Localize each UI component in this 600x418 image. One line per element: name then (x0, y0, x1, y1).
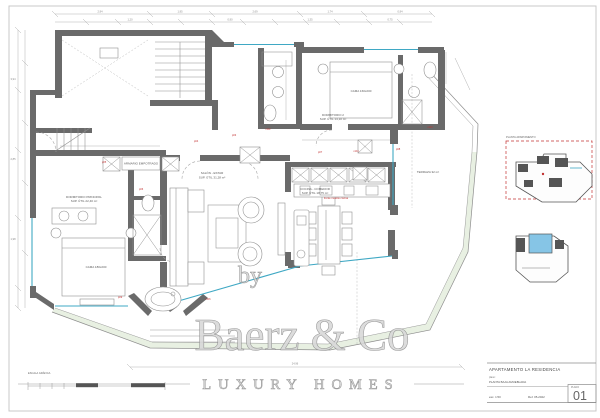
floor-plan-svg: DORMITORIO PRINCIPALSUP. ÚTIL 22,40 m²CA… (0, 0, 600, 418)
title-block: APARTAMENTO LA RESIDENCIA plano: PLANTA … (487, 363, 596, 403)
room-label: SUP. ÚTIL 18,75 m² (302, 190, 329, 195)
dim-label: 1,35 (307, 18, 313, 22)
stairs (57, 42, 205, 150)
room-label: ARMARIO EMPOTRADO (124, 162, 159, 166)
key-plan-caption: PLANTA APARTAMENTO (506, 135, 536, 139)
drawing-reference: Ref. 05-2022 (528, 395, 545, 399)
dim-label: 2,94 (97, 10, 103, 14)
red-tag: m06 (205, 297, 211, 301)
room-label: TERRAZA 32 m² (417, 170, 439, 174)
doc-label: plano: (489, 376, 496, 379)
drawing-subtitle: PLANTA BAJA AMUEBLADA (489, 380, 526, 384)
red-tag: p06 (139, 187, 144, 191)
room-label: CAMA 160x200 (351, 89, 372, 93)
red-tag: p05 (102, 160, 107, 164)
red-tag: m02 (265, 127, 271, 131)
room-label: SALÓN - ESTAR (201, 170, 224, 175)
room-label: SUP. ÚTIL 22,40 m² (71, 198, 98, 203)
graphic-scale: ESCALA GRÁFICA (28, 371, 165, 390)
project-title: APARTAMENTO LA RESIDENCIA (489, 367, 560, 372)
room-label: CAMA 180x200 (86, 265, 107, 269)
dim-label: 0,94 (397, 10, 403, 14)
dim-label: 2,85 (10, 157, 16, 161)
watermark-by: by (238, 263, 262, 289)
drawing-scale: esc. 1:50 (489, 395, 501, 399)
key-plan-lower (516, 234, 568, 282)
room-label: SUP. ÚTIL 14,10 m² (320, 116, 347, 121)
red-tag: p04 (194, 139, 199, 143)
sheet-number: 01 (573, 389, 587, 403)
dim-label: 2,69 (252, 10, 258, 14)
dim-label: 3,94 (10, 77, 16, 81)
dim-label: 1,20 (127, 18, 133, 22)
dim-label: 1,95 (177, 10, 183, 14)
dim-label: 0,75 (387, 18, 393, 22)
red-tag: p09 (118, 295, 123, 299)
drawing-sheet: DORMITORIO PRINCIPALSUP. ÚTIL 22,40 m²CA… (0, 0, 600, 418)
red-tag: m03 (427, 125, 433, 129)
red-tag: p07 (318, 150, 323, 154)
red-tag: p08 (396, 147, 401, 151)
red-tag: m04 (353, 149, 359, 153)
red-tag: frente mueble cocina (324, 196, 349, 200)
key-plan-upper: PLANTA APARTAMENTO (506, 135, 592, 202)
dim-label: 1,98 (10, 237, 16, 241)
watermark-brand: Baerz & Co (195, 310, 410, 360)
room-label: SUP. ÚTIL 31,28 m² (199, 175, 226, 180)
red-tag: p03 (232, 133, 237, 137)
dim-label: 1,74 (327, 10, 333, 14)
dim-label: 0,90 (227, 18, 233, 22)
dim-label: 24,96 (292, 362, 299, 366)
watermark-tagline: LUXURY HOMES (202, 377, 399, 393)
graphic-scale-label: ESCALA GRÁFICA (28, 371, 51, 375)
